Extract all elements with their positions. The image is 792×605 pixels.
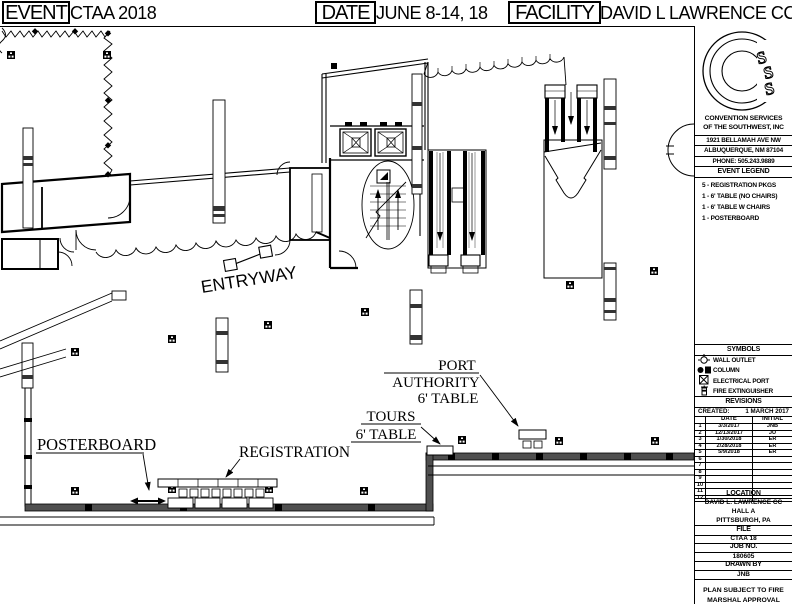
css-logo: SSS bbox=[695, 28, 792, 114]
event-legend-list: 5 - REGISTRATION PKGS 1 - 6' TABLE (NO C… bbox=[695, 180, 792, 224]
symbol-label: FIRE EXTINGUISHER bbox=[713, 388, 773, 395]
floor-plan-drawing: ENTRYWAY POSTERBOARD REGISTRATION TOURS … bbox=[0, 0, 792, 605]
svg-text:6' TABLE: 6' TABLE bbox=[418, 391, 479, 407]
registration-tables bbox=[158, 479, 277, 508]
event-value: CTAA 2018 bbox=[70, 2, 156, 24]
event-legend-title: EVENT LEGEND bbox=[695, 166, 792, 178]
edge-arc bbox=[666, 124, 694, 176]
escalator-right bbox=[544, 85, 602, 278]
drawn-by-title: DRAWN BY bbox=[695, 561, 792, 571]
date-label: DATE bbox=[315, 1, 376, 24]
date-value: JUNE 8-14, 18 bbox=[376, 2, 488, 24]
legend-item: 5 - REGISTRATION PKGS bbox=[695, 180, 792, 191]
tours-label: TOURS 6' TABLE bbox=[351, 409, 440, 444]
floor-plan-sheet: EVENT CTAA 2018 DATE JUNE 8-14, 18 FACIL… bbox=[0, 0, 792, 605]
job-title: JOB NO. bbox=[695, 543, 792, 553]
tours-table bbox=[427, 446, 453, 455]
fire-marshal-note: PLAN SUBJECT TO FIRE MARSHAL APPROVAL bbox=[695, 579, 792, 605]
posterboard-label: POSTERBOARD bbox=[36, 435, 156, 490]
posterboard-symbol bbox=[130, 498, 166, 505]
registration-label: REGISTRATION bbox=[226, 444, 350, 477]
svg-text:REGISTRATION: REGISTRATION bbox=[239, 444, 350, 461]
column-strips bbox=[22, 74, 616, 388]
symbol-label: ELECTRICAL PORT bbox=[713, 378, 769, 385]
event-label: EVENT bbox=[2, 1, 70, 24]
legend-item: 1 - POSTERBOARD bbox=[695, 213, 792, 224]
entry-vestibule-walls bbox=[130, 162, 330, 255]
legend-item: 1 - 6' TABLE W CHAIRS bbox=[695, 202, 792, 213]
svg-text:POSTERBOARD: POSTERBOARD bbox=[37, 435, 156, 454]
port-authority-table bbox=[519, 430, 546, 448]
escalator-left bbox=[428, 150, 486, 273]
stairs bbox=[330, 158, 420, 268]
left-rooms bbox=[2, 174, 130, 269]
title-block: SSS CONVENTION SERVICES OF THE SOUTHWEST… bbox=[694, 26, 792, 604]
symbol-label: COLUMN bbox=[713, 367, 739, 374]
facility-value: DAVID L LAWRENCE CC bbox=[600, 2, 792, 24]
legend-item: 1 - 6' TABLE (NO CHAIRS) bbox=[695, 191, 792, 202]
symbol-label: WALL OUTLET bbox=[713, 357, 755, 364]
drape-line bbox=[424, 54, 566, 85]
company-name: CONVENTION SERVICES OF THE SOUTHWEST, IN… bbox=[695, 114, 792, 136]
symbols-list: WALL OUTLET COLUMN ELECTRICAL PORT FIRE … bbox=[695, 355, 792, 397]
facility-label: FACILITY bbox=[508, 1, 601, 24]
entryway-label: ENTRYWAY bbox=[199, 262, 298, 297]
svg-text:PORT: PORT bbox=[438, 358, 475, 374]
svg-text:6' TABLE: 6' TABLE bbox=[356, 427, 417, 443]
svg-text:TOURS: TOURS bbox=[367, 409, 416, 425]
elevators bbox=[340, 129, 406, 156]
company-address: 1921 BELLAMAH AVE NW ALBUQUERQUE, NM 871… bbox=[695, 136, 792, 167]
ramp-rails bbox=[0, 293, 112, 377]
svg-text:AUTHORITY: AUTHORITY bbox=[392, 375, 480, 391]
zigzag-wall bbox=[2, 28, 112, 177]
location-lines: DAVID L. LAWRENCE CC HALL A PITTSBURGH, … bbox=[695, 498, 792, 525]
title-bar: EVENT CTAA 2018 DATE JUNE 8-14, 18 FACIL… bbox=[0, 0, 792, 27]
entryway-doors bbox=[96, 232, 316, 258]
